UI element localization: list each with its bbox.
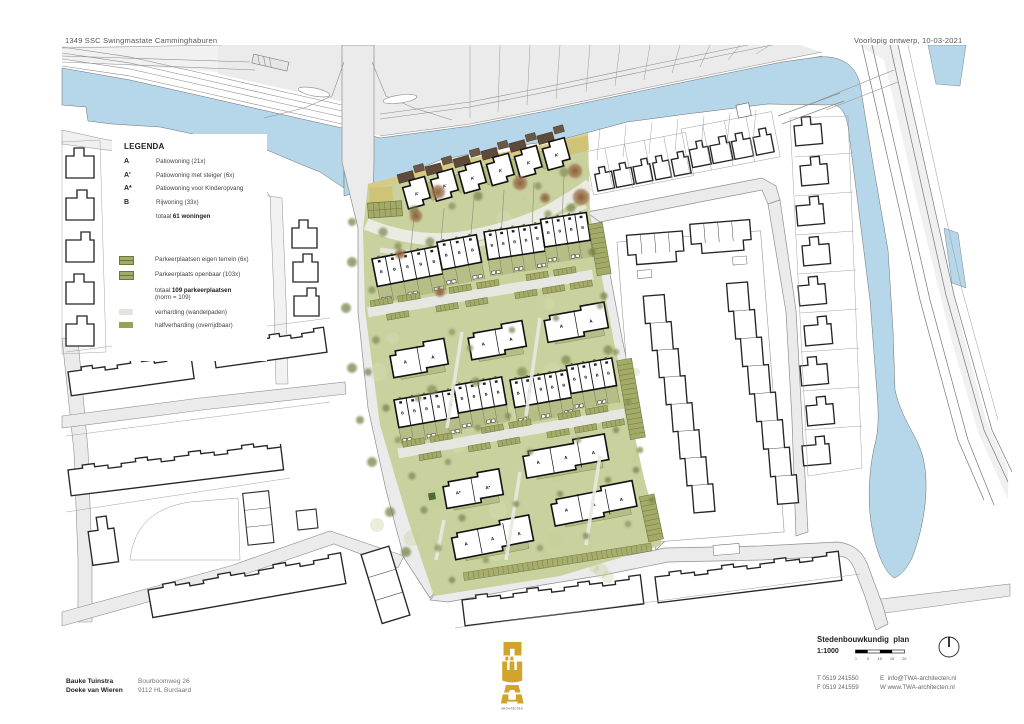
svg-text:15: 15 <box>890 656 895 661</box>
svg-text:ARCHITECTEN: ARCHITECTEN <box>501 707 523 711</box>
svg-text:10: 10 <box>878 656 883 661</box>
svg-text:5: 5 <box>867 656 870 661</box>
svg-text:0: 0 <box>855 656 857 661</box>
svg-text:20: 20 <box>902 656 907 661</box>
